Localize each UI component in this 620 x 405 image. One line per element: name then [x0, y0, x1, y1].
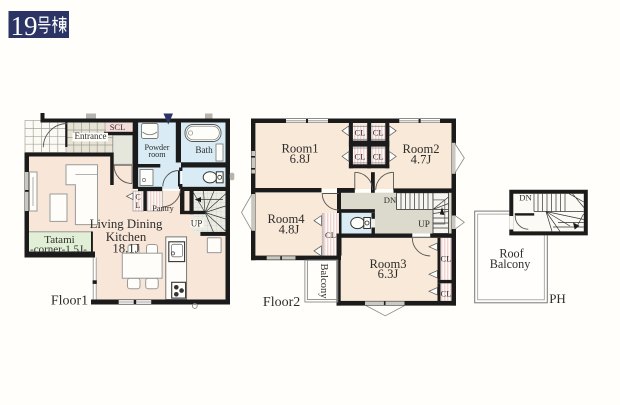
svg-text:Bath: Bath	[195, 145, 213, 155]
svg-text:6.8J: 6.8J	[290, 152, 311, 166]
svg-text:C: C	[135, 192, 140, 201]
svg-text:DN: DN	[384, 195, 397, 205]
svg-text:UP: UP	[418, 219, 430, 229]
svg-text:18.1J: 18.1J	[112, 242, 139, 256]
svg-text:4.8J: 4.8J	[279, 223, 300, 237]
svg-text:SCL: SCL	[110, 122, 126, 132]
svg-text:L: L	[136, 201, 141, 210]
svg-text:Floor2: Floor2	[263, 295, 300, 310]
svg-text:CL: CL	[355, 128, 366, 138]
svg-text:Floor1: Floor1	[51, 293, 88, 308]
svg-text:Pantry: Pantry	[152, 204, 174, 213]
svg-text:6.3J: 6.3J	[378, 267, 399, 281]
svg-text:CL: CL	[325, 230, 336, 240]
svg-text:19: 19	[11, 11, 38, 41]
svg-text:PH: PH	[549, 291, 566, 306]
svg-text:CL: CL	[373, 128, 384, 138]
svg-text:4.7J: 4.7J	[411, 153, 432, 167]
svg-text:DN: DN	[519, 193, 532, 203]
svg-text:Entrance: Entrance	[75, 131, 107, 141]
svg-text:CL: CL	[441, 289, 452, 299]
svg-text:UP: UP	[191, 219, 203, 229]
svg-text:Balcony: Balcony	[318, 264, 329, 300]
svg-text:CL: CL	[355, 152, 366, 162]
svg-text:CL: CL	[441, 254, 452, 264]
svg-text:CL: CL	[373, 152, 384, 162]
svg-text:-corner-1.5J-: -corner-1.5J-	[30, 244, 87, 256]
svg-text:Balcony: Balcony	[490, 257, 532, 271]
svg-text:room: room	[148, 150, 166, 159]
